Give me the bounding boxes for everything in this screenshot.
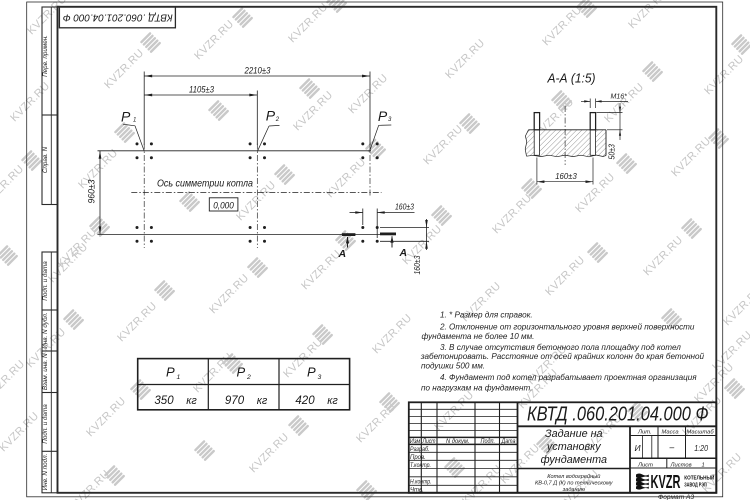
svg-text:Котел водогрейный: Котел водогрейный — [547, 473, 600, 480]
svg-text:подушки 500 мм.: подушки 500 мм. — [421, 362, 485, 371]
svg-text:Т.контр.: Т.контр. — [410, 463, 431, 469]
svg-text:3: 3 — [388, 117, 392, 123]
svg-text:P: P — [237, 365, 246, 380]
svg-text:Подп. и дата: Подп. и дата — [41, 404, 49, 444]
svg-text:установку: установку — [546, 441, 601, 453]
svg-text:–: – — [669, 442, 675, 452]
svg-text:Взам. инв. N: Взам. инв. N — [42, 353, 49, 390]
svg-text:Пров.: Пров. — [410, 455, 426, 461]
svg-text:Листов: Листов — [670, 462, 692, 468]
svg-text:970: 970 — [225, 395, 245, 407]
svg-text:Ось симметрии котла: Ось симметрии котла — [157, 179, 253, 190]
svg-text:2: 2 — [275, 117, 280, 123]
svg-text:А-А (1:5): А-А (1:5) — [547, 71, 596, 85]
svg-text:Задание на: Задание на — [545, 428, 603, 440]
svg-text:4. Фундамент под котел разраба: 4. Фундамент под котел разрабатывает про… — [440, 373, 697, 382]
svg-text:Справ. N: Справ. N — [42, 146, 49, 173]
svg-text:забетонировать. Расстояние от: забетонировать. Расстояние от осей крайн… — [420, 352, 705, 361]
svg-text:Чтв.: Чтв. — [410, 488, 424, 494]
svg-text:А: А — [338, 248, 347, 260]
svg-text:P: P — [266, 108, 276, 124]
svg-text:960±3: 960±3 — [87, 179, 97, 203]
svg-text:Лист: Лист — [637, 462, 653, 468]
svg-text:160±3: 160±3 — [555, 172, 577, 181]
svg-text:КВТД .060.201.04.000 Ф: КВТД .060.201.04.000 Ф — [527, 404, 709, 426]
svg-text:2210±3: 2210±3 — [244, 66, 271, 76]
svg-text:160±3: 160±3 — [395, 203, 414, 212]
svg-text:заданию: заданию — [562, 487, 586, 493]
svg-text:КВТД .060.201.04.000 Ф: КВТД .060.201.04.000 Ф — [63, 11, 173, 23]
svg-text:Масса: Масса — [662, 429, 680, 435]
svg-text:фундамента: фундамента — [541, 454, 607, 466]
svg-text:И: И — [635, 443, 642, 453]
svg-text:1: 1 — [133, 117, 136, 123]
svg-text:А: А — [399, 247, 408, 259]
svg-text:2. Отклонение от горизонтально: 2. Отклонение от горизонтального уровня … — [439, 322, 695, 331]
svg-text:Дата: Дата — [501, 439, 516, 445]
svg-text:P: P — [121, 108, 131, 124]
svg-text:фундамента не более 10 мм.: фундамента не более 10 мм. — [422, 332, 535, 341]
svg-text:Подп. и дата: Подп. и дата — [41, 261, 49, 301]
svg-text:ЗАВОД РЭП: ЗАВОД РЭП — [684, 483, 707, 489]
svg-text:Лист: Лист — [422, 439, 436, 445]
svg-text:1105±3: 1105±3 — [189, 85, 214, 95]
svg-text:Перв. примен.: Перв. примен. — [42, 35, 49, 77]
svg-text:Масштаб: Масштаб — [687, 429, 715, 435]
svg-text:кг: кг — [257, 395, 268, 407]
svg-text:Н.контр.: Н.контр. — [410, 480, 432, 486]
svg-text:P: P — [307, 365, 316, 380]
svg-text:0,000: 0,000 — [213, 201, 234, 211]
svg-text:KVZR: KVZR — [651, 471, 681, 492]
svg-text:по нагрузкам на фундамент.: по нагрузкам на фундамент. — [421, 383, 532, 392]
svg-text:Подп.: Подп. — [481, 439, 496, 445]
svg-text:КОТЕЛЬНЫЙ: КОТЕЛЬНЫЙ — [684, 474, 714, 482]
svg-text:М16*: М16* — [611, 93, 628, 100]
svg-text:2: 2 — [246, 374, 251, 381]
svg-text:кг: кг — [327, 395, 338, 407]
svg-text:350: 350 — [154, 395, 174, 407]
svg-text:1:20: 1:20 — [694, 443, 708, 453]
svg-text:P: P — [378, 108, 388, 124]
svg-text:Инв. N подл.: Инв. N подл. — [41, 454, 49, 491]
svg-text:1. * Размер для справок.: 1. * Размер для справок. — [440, 310, 533, 319]
svg-text:1: 1 — [177, 374, 181, 381]
svg-text:3: 3 — [318, 374, 322, 381]
svg-text:50±3: 50±3 — [608, 143, 617, 159]
svg-text:Инв. N дубл.: Инв. N дубл. — [41, 312, 49, 348]
svg-text:Лит.: Лит. — [637, 429, 652, 435]
svg-text:Разраб.: Разраб. — [410, 447, 430, 453]
svg-text:1: 1 — [702, 462, 705, 468]
svg-text:420: 420 — [295, 395, 315, 407]
svg-text:Формат А3: Формат А3 — [658, 494, 694, 500]
svg-text:Изм: Изм — [410, 439, 421, 445]
svg-text:160±3: 160±3 — [413, 255, 422, 274]
svg-text:N докум.: N докум. — [446, 439, 470, 445]
svg-text:КВ-0,7 Д (К) по техническому: КВ-0,7 Д (К) по техническому — [535, 481, 614, 487]
svg-text:P: P — [166, 365, 175, 380]
svg-text:3. В случае отсутствия бетонно: 3. В случае отсутствия бетонного пола пл… — [440, 343, 681, 352]
svg-text:кг: кг — [186, 395, 197, 407]
